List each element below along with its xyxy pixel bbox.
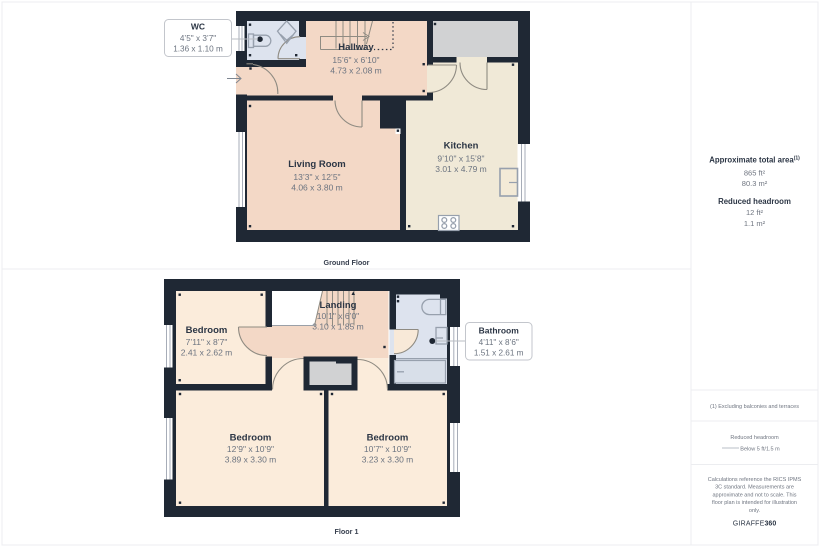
svg-text:only.: only.: [749, 508, 761, 514]
svg-text:floor plan is intended for ill: floor plan is intended for illustration: [712, 500, 797, 506]
svg-text:10’7" x 10’9": 10’7" x 10’9": [364, 444, 411, 454]
svg-text:WC: WC: [191, 22, 205, 32]
svg-text:Reduced headroom: Reduced headroom: [718, 197, 791, 206]
svg-text:Hallway: Hallway: [338, 42, 374, 53]
svg-text:3.01 x 4.79 m: 3.01 x 4.79 m: [435, 164, 487, 174]
svg-text:Approximate total area(1): Approximate total area(1): [709, 156, 800, 165]
svg-text:4’11" x 8’6": 4’11" x 8’6": [479, 338, 519, 347]
svg-text:Kitchen: Kitchen: [444, 141, 479, 152]
svg-text:7’11" x 8’7": 7’11" x 8’7": [186, 337, 228, 347]
svg-text:13’3" x 12’5": 13’3" x 12’5": [293, 172, 340, 182]
svg-text:(1) Excluding balconies and te: (1) Excluding balconies and terraces: [710, 404, 799, 410]
svg-text:Landing: Landing: [320, 300, 357, 311]
svg-text:Calculations reference the RIC: Calculations reference the RICS IPMS: [708, 477, 802, 483]
svg-text:9’10" x 15’8": 9’10" x 15’8": [437, 154, 484, 164]
svg-text:GIRAFFE360: GIRAFFE360: [733, 521, 777, 528]
svg-text:Bathroom: Bathroom: [479, 326, 520, 336]
svg-text:approximate and not to scale.: approximate and not to scale. This: [713, 492, 797, 498]
svg-text:Reduced headroom: Reduced headroom: [730, 435, 779, 441]
svg-text:3.10 x 1.85 m: 3.10 x 1.85 m: [312, 322, 364, 332]
svg-text:Floor 1: Floor 1: [335, 527, 359, 536]
svg-text:865 ft²: 865 ft²: [744, 169, 766, 178]
svg-text:15’6" x 6’10": 15’6" x 6’10": [332, 55, 379, 65]
svg-text:10’1" x 6’0": 10’1" x 6’0": [317, 311, 359, 321]
svg-text:2.41 x 2.62 m: 2.41 x 2.62 m: [181, 348, 233, 358]
svg-text:80.3 m²: 80.3 m²: [742, 179, 768, 188]
svg-text:Bedroom: Bedroom: [186, 325, 228, 336]
svg-text:3C standard. Measurements are: 3C standard. Measurements are: [715, 485, 794, 491]
svg-text:Living Room: Living Room: [288, 159, 346, 170]
svg-text:Below 5 ft/1.5 m: Below 5 ft/1.5 m: [740, 447, 780, 453]
svg-text:Bedroom: Bedroom: [230, 433, 272, 444]
svg-text:4.73 x 2.08 m: 4.73 x 2.08 m: [330, 66, 382, 76]
svg-text:Bedroom: Bedroom: [367, 433, 409, 444]
svg-text:3.89 x 3.30 m: 3.89 x 3.30 m: [225, 455, 277, 465]
svg-text:1.36 x 1.10 m: 1.36 x 1.10 m: [173, 45, 223, 54]
svg-text:3.23 x 3.30 m: 3.23 x 3.30 m: [362, 455, 414, 465]
svg-text:1.51 x 2.61 m: 1.51 x 2.61 m: [474, 349, 524, 358]
svg-text:12 ft²: 12 ft²: [746, 208, 764, 217]
svg-text:4’5" x 3’7": 4’5" x 3’7": [180, 34, 216, 43]
svg-text:1.1 m²: 1.1 m²: [744, 219, 766, 228]
svg-text:Ground Floor: Ground Floor: [324, 258, 370, 267]
svg-text:4.06 x 3.80 m: 4.06 x 3.80 m: [291, 183, 343, 193]
svg-text:12’9" x 10’9": 12’9" x 10’9": [227, 444, 274, 454]
